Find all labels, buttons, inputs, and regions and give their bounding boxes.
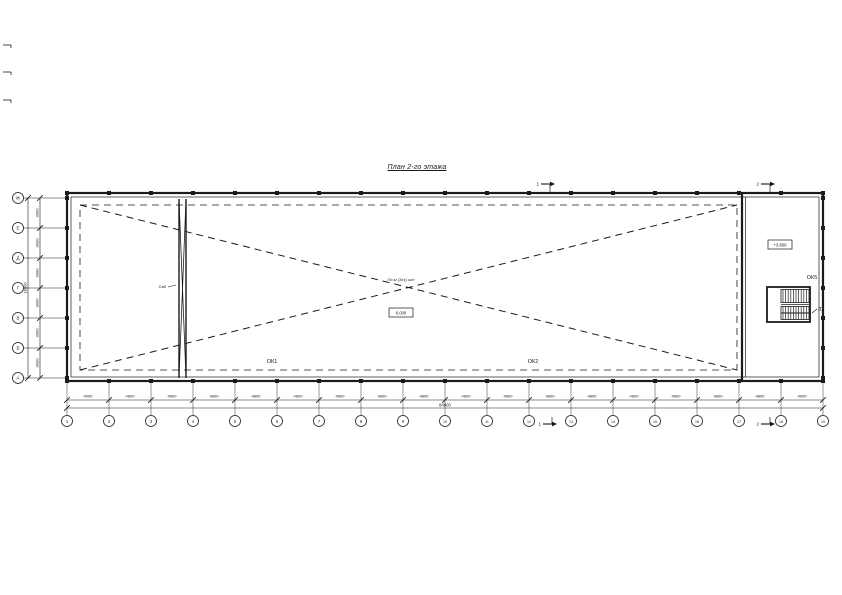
svg-text:14: 14: [611, 420, 615, 424]
svg-text:18: 18: [779, 420, 783, 424]
svg-text:4800: 4800: [588, 394, 598, 399]
svg-text:4800: 4800: [462, 394, 472, 399]
svg-text:ОК1: ОК1: [267, 359, 278, 365]
svg-text:2: 2: [756, 182, 759, 187]
svg-text:Пл-м (3х4) шт: Пл-м (3х4) шт: [387, 277, 415, 282]
svg-text:Б: Б: [17, 346, 20, 351]
svg-text:4800: 4800: [756, 394, 766, 399]
svg-text:13: 13: [569, 420, 573, 424]
svg-text:17: 17: [737, 420, 741, 424]
svg-text:А: А: [16, 376, 19, 381]
svg-text:3000: 3000: [35, 268, 40, 278]
dimensions-bottom: 4000480048004800480048004800480048004800…: [64, 381, 826, 415]
svg-text:16: 16: [695, 420, 699, 424]
svg-text:4000: 4000: [84, 394, 94, 399]
svg-text:84800: 84800: [439, 403, 451, 408]
svg-text:19: 19: [821, 420, 825, 424]
drawing-sheet: План 2-го этажа Св5ОК5Л2+3.6006.000Пл-м …: [0, 0, 842, 595]
svg-text:4800: 4800: [252, 394, 262, 399]
edge-marks: [3, 45, 11, 103]
building-walls: [67, 193, 823, 381]
svg-text:4800: 4800: [714, 394, 724, 399]
svg-text:4800: 4800: [168, 394, 178, 399]
svg-text:Св5: Св5: [159, 284, 167, 289]
svg-text:6.000: 6.000: [396, 311, 407, 316]
svg-text:3000: 3000: [35, 238, 40, 248]
svg-text:4800: 4800: [294, 394, 304, 399]
axis-grid-bottom: 12345678910111213141516171819: [62, 416, 829, 427]
svg-text:Е: Е: [16, 226, 19, 231]
svg-text:4800: 4800: [336, 394, 346, 399]
svg-text:4800: 4800: [630, 394, 640, 399]
svg-text:4800: 4800: [378, 394, 388, 399]
svg-text:4800: 4800: [546, 394, 556, 399]
svg-text:4800: 4800: [126, 394, 136, 399]
svg-text:3000: 3000: [35, 298, 40, 308]
svg-text:ОК5: ОК5: [807, 275, 818, 281]
svg-text:2: 2: [756, 422, 759, 427]
plan-notes: +3.6006.000Пл-м (3х4) штОК1ОК2: [267, 240, 792, 365]
svg-text:4800: 4800: [210, 394, 220, 399]
svg-text:4800: 4800: [420, 394, 430, 399]
svg-text:4800: 4800: [672, 394, 682, 399]
svg-text:12: 12: [527, 420, 531, 424]
floor-plan-canvas: Св5ОК5Л2+3.6006.000Пл-м (3х4) штОК1ОК2ЖЕ…: [0, 0, 842, 595]
svg-text:1: 1: [536, 182, 539, 187]
svg-text:3000: 3000: [35, 328, 40, 338]
svg-text:18000: 18000: [23, 282, 28, 294]
svg-text:В: В: [16, 316, 19, 321]
svg-text:ОК2: ОК2: [528, 359, 539, 365]
svg-text:+3.600: +3.600: [774, 243, 788, 248]
svg-text:4000: 4000: [798, 394, 808, 399]
svg-text:Л2: Л2: [818, 307, 824, 313]
svg-text:10: 10: [443, 420, 447, 424]
staircase: ОК5Л2: [767, 275, 824, 322]
svg-text:4800: 4800: [504, 394, 514, 399]
svg-text:3000: 3000: [35, 358, 40, 368]
svg-text:1: 1: [538, 422, 541, 427]
svg-text:11: 11: [485, 420, 489, 424]
svg-text:Д: Д: [16, 256, 19, 261]
svg-text:3000: 3000: [35, 208, 40, 218]
svg-text:15: 15: [653, 420, 657, 424]
